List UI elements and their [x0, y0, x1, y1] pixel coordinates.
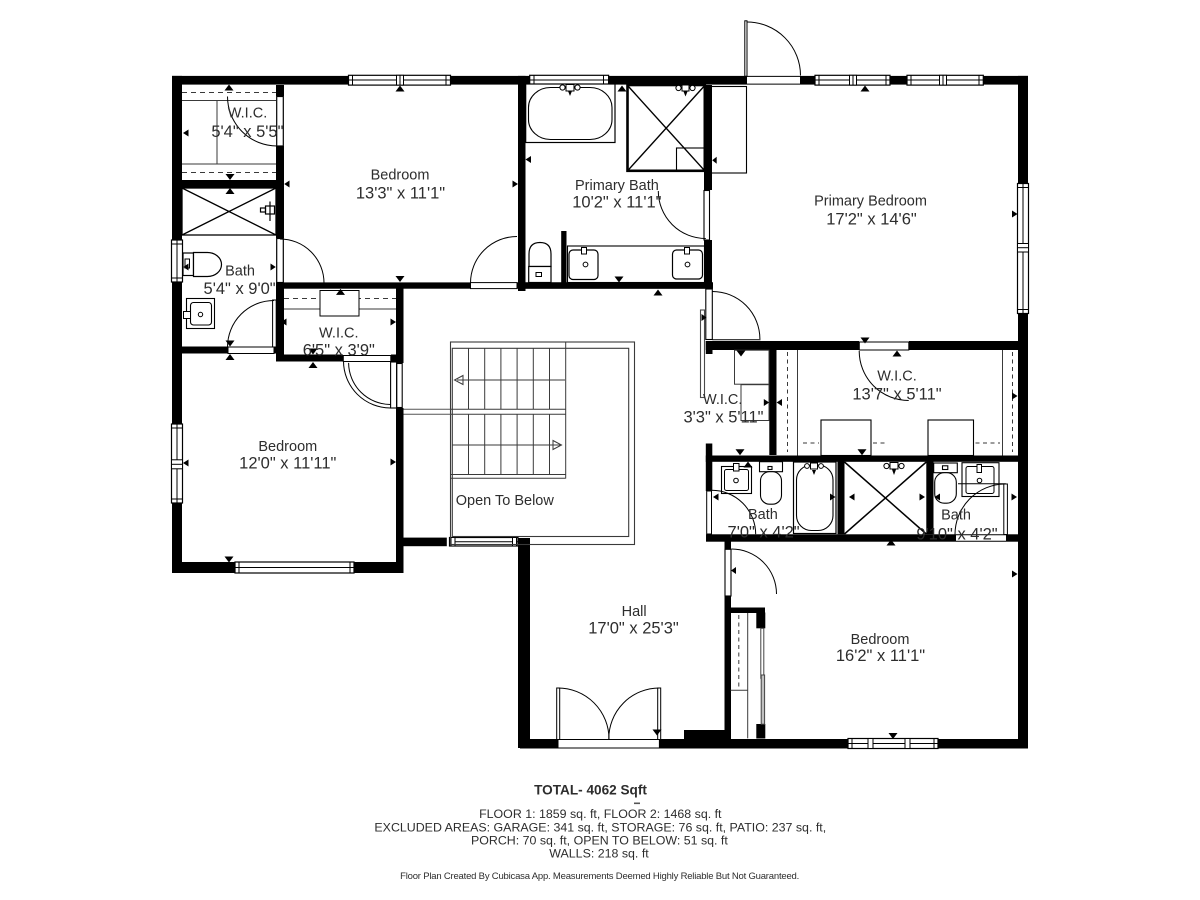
svg-text:EXCLUDED AREAS: GARAGE: 341 sq: EXCLUDED AREAS: GARAGE: 341 sq. ft, STOR… — [374, 821, 826, 835]
svg-text:W.I.C.: W.I.C. — [703, 392, 742, 408]
svg-text:13'7" x 5'11": 13'7" x 5'11" — [852, 386, 941, 404]
svg-text:Open To Below: Open To Below — [456, 493, 555, 509]
svg-text:TOTAL- 4062 Sqft: TOTAL- 4062 Sqft — [534, 783, 647, 798]
svg-text:PORCH: 70 sq. ft, OPEN TO BELO: PORCH: 70 sq. ft, OPEN TO BELOW: 51 sq. … — [471, 834, 728, 848]
svg-text:6'5" x 3'9": 6'5" x 3'9" — [303, 342, 375, 360]
svg-text:9'10" x 4'2": 9'10" x 4'2" — [916, 526, 997, 544]
svg-text:17'2" x 14'6": 17'2" x 14'6" — [826, 211, 917, 229]
svg-text:FLOOR 1: 1859 sq. ft, FLOOR 2:: FLOOR 1: 1859 sq. ft, FLOOR 2: 1468 sq. … — [479, 807, 722, 821]
svg-text:Bath: Bath — [941, 508, 971, 524]
svg-text:5'4" x 5'5": 5'4" x 5'5" — [211, 123, 283, 141]
svg-text:Bedroom: Bedroom — [371, 167, 430, 183]
svg-text:12'0" x 11'11": 12'0" x 11'11" — [239, 455, 336, 473]
svg-text:17'0" x 25'3": 17'0" x 25'3" — [588, 620, 679, 638]
svg-text:Bath: Bath — [225, 264, 255, 280]
svg-text:W.I.C.: W.I.C. — [877, 369, 916, 385]
svg-text:WALLS: 218 sq. ft: WALLS: 218 sq. ft — [549, 847, 649, 861]
svg-text:13'3" x 11'1": 13'3" x 11'1" — [356, 185, 445, 203]
svg-text:Floor Plan Created By Cubicasa: Floor Plan Created By Cubicasa App. Meas… — [400, 871, 799, 882]
svg-text:Bath: Bath — [748, 507, 778, 523]
svg-text:Hall: Hall — [622, 604, 647, 620]
svg-text:7'0" x 4'2": 7'0" x 4'2" — [728, 524, 800, 542]
svg-text:Bedroom: Bedroom — [258, 439, 317, 455]
svg-text:Primary Bedroom: Primary Bedroom — [814, 194, 927, 210]
svg-text:W.I.C.: W.I.C. — [319, 326, 358, 342]
svg-text:Primary Bath: Primary Bath — [575, 178, 659, 194]
svg-text:3'3" x 5'11": 3'3" x 5'11" — [683, 409, 763, 427]
svg-text:W.I.C.: W.I.C. — [228, 106, 267, 122]
svg-text:10'2" x 11'1": 10'2" x 11'1" — [572, 194, 661, 212]
svg-text:Bedroom: Bedroom — [851, 632, 910, 648]
svg-text:5'4" x 9'0": 5'4" x 9'0" — [204, 280, 276, 298]
svg-text:16'2" x 11'1": 16'2" x 11'1" — [836, 647, 925, 665]
